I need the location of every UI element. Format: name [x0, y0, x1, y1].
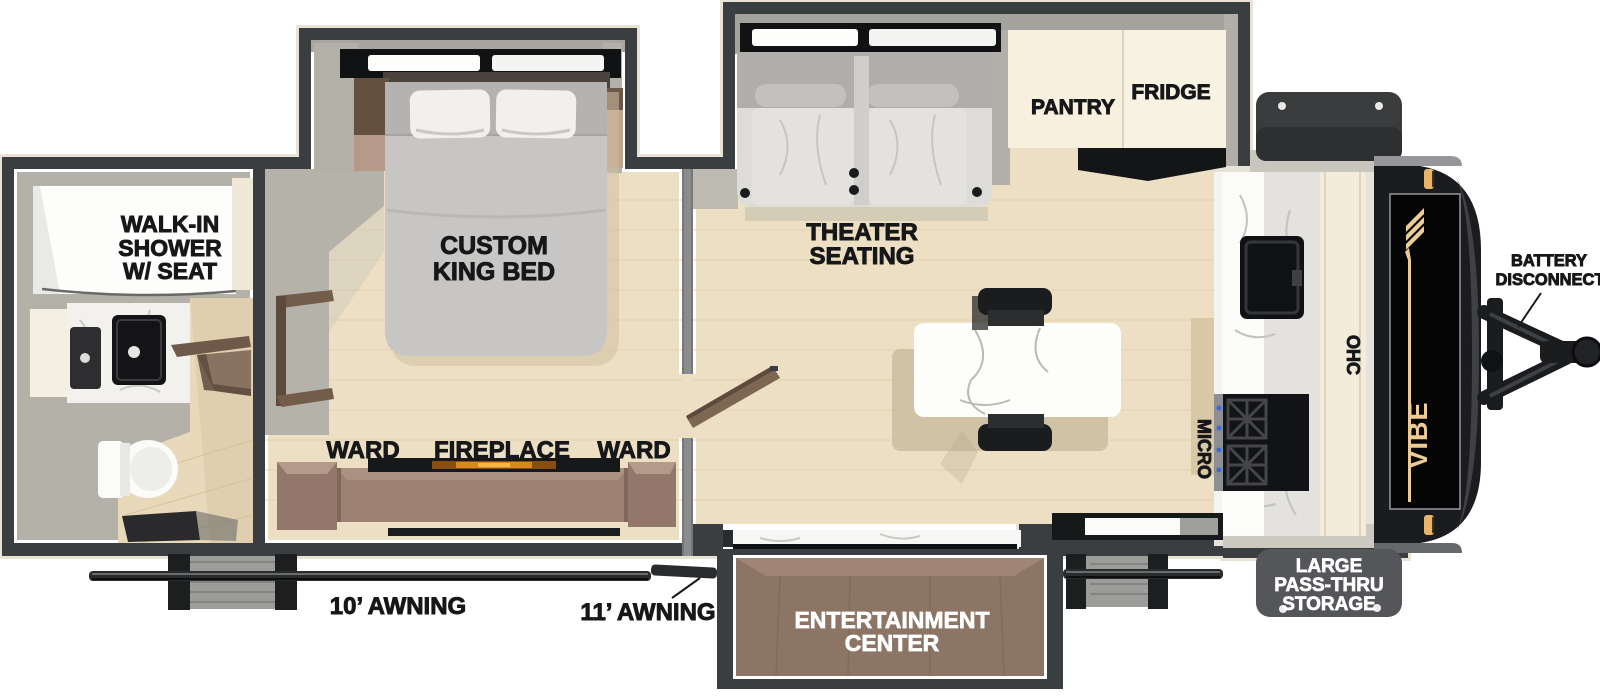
svg-text:CENTER: CENTER — [845, 630, 940, 656]
svg-text:LARGE: LARGE — [1296, 556, 1363, 577]
svg-text:11’ AWNING: 11’ AWNING — [580, 599, 715, 626]
svg-text:OHC: OHC — [1343, 335, 1363, 375]
svg-text:THEATER: THEATER — [806, 219, 918, 246]
svg-text:WALK-IN: WALK-IN — [121, 211, 219, 237]
svg-text:10’ AWNING: 10’ AWNING — [330, 593, 466, 620]
svg-text:FRIDGE: FRIDGE — [1131, 81, 1210, 104]
svg-text:PASS-THRU: PASS-THRU — [1274, 575, 1383, 596]
svg-text:SEATING: SEATING — [810, 243, 915, 270]
svg-text:FIREPLACE: FIREPLACE — [434, 437, 570, 464]
svg-text:PANTRY: PANTRY — [1031, 96, 1115, 119]
svg-text:DISCONNECT: DISCONNECT — [1495, 271, 1600, 289]
svg-text:WARD: WARD — [326, 437, 399, 464]
svg-text:WARD: WARD — [597, 437, 670, 464]
svg-text:CUSTOM: CUSTOM — [440, 232, 548, 260]
svg-text:BATTERY: BATTERY — [1511, 252, 1587, 270]
svg-text:STORAGE: STORAGE — [1282, 594, 1376, 615]
svg-text:MICRO: MICRO — [1194, 419, 1214, 479]
svg-text:KING BED: KING BED — [433, 258, 555, 286]
svg-text:VIBE: VIBE — [1403, 401, 1433, 468]
svg-text:W/ SEAT: W/ SEAT — [123, 258, 217, 284]
